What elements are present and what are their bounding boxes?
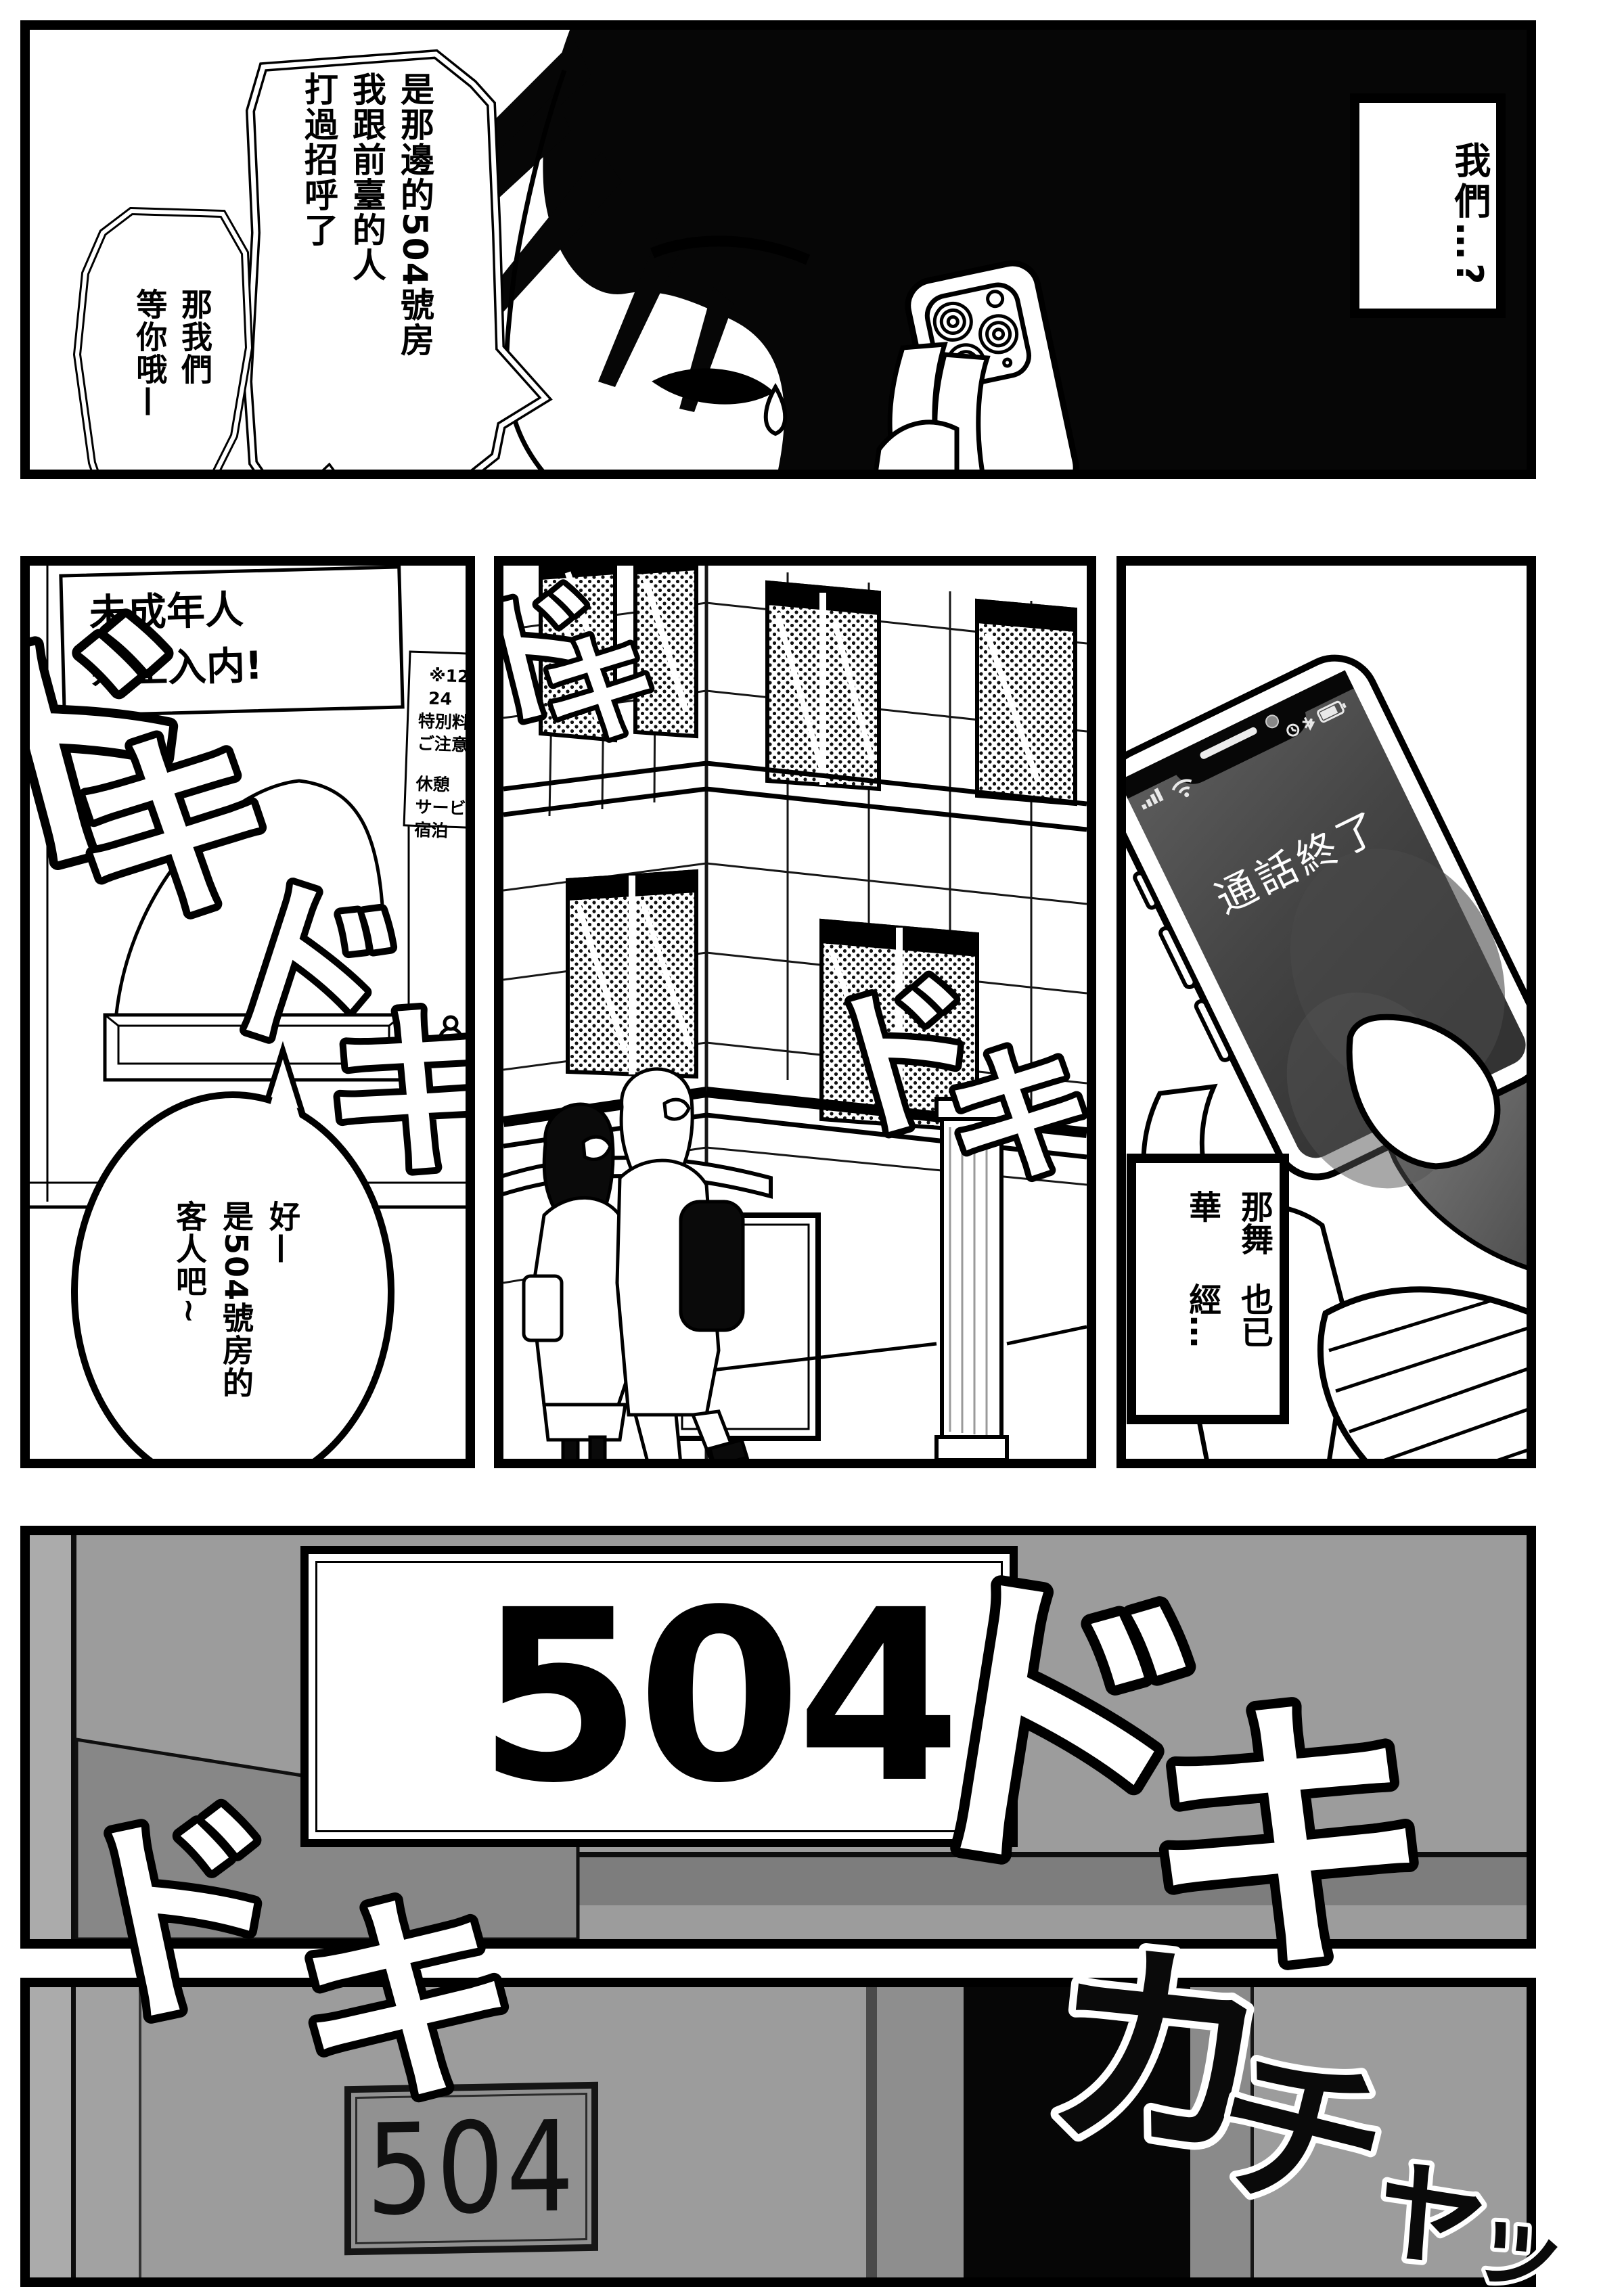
door-knob-icon — [440, 1017, 461, 1050]
lobby-arch — [116, 781, 384, 1014]
narration-box: 那舞華 也已經… — [1127, 1154, 1289, 1424]
handbag — [524, 1276, 562, 1340]
minor-prohibition-sign: 未成年人 禁止入内! — [59, 565, 404, 717]
camera-flash-icon — [987, 290, 1004, 308]
backpack — [681, 1202, 743, 1330]
panel1-art — [30, 30, 1527, 470]
door-plate-text: 504 — [366, 2104, 576, 2233]
sleeve — [1321, 1290, 1527, 1459]
eye — [656, 370, 771, 402]
room-number-sign: 504 — [300, 1546, 1018, 1847]
dialogue-line: 打過招呼了 — [294, 72, 342, 464]
panel-phone-screen: 通話終了 那舞華 也已經… — [1116, 556, 1536, 1468]
phone-dialogue-sub: 那我們 等你哦— — [126, 288, 217, 479]
panel-room-sign: 504 — [20, 1526, 1536, 1949]
column — [937, 1099, 1007, 1459]
thought-text: 我們…? — [1359, 120, 1496, 310]
door-edge — [1190, 1987, 1250, 2277]
dialogue-line: 那我們 — [172, 288, 217, 479]
sign-line: 禁止入内! — [90, 634, 401, 698]
building-windows — [541, 566, 1075, 1131]
thought-box: 我們…? — [1350, 93, 1506, 318]
dialogue-line: 是那邊的504號房 — [390, 72, 438, 464]
panel-phone-call: 是那邊的504號房 我跟前臺的人 打過招呼了 那我們 等你哦— — [20, 20, 1536, 479]
phone-dialogue-main: 是那邊的504號房 我跟前臺的人 打過招呼了 — [292, 72, 438, 464]
clerk-dialogue: 好— 是504號房的 客人吧~ — [150, 1200, 306, 1468]
door-jamb — [866, 1987, 877, 2277]
panel-hotel-exterior — [494, 556, 1096, 1468]
door-plate: 504 — [344, 2082, 598, 2256]
room-number-text: 504 — [478, 1579, 956, 1815]
dialogue-line: 等你哦— — [127, 288, 173, 479]
panel-room-door: 504 — [20, 1978, 1536, 2287]
sign-line: 未成年人 — [89, 578, 399, 643]
panel6-art — [30, 1987, 1527, 2277]
panel3-art — [503, 566, 1087, 1459]
door-opening — [964, 1987, 1190, 2277]
narration-text: 那舞華 也已經… — [1136, 1190, 1280, 1407]
reception-counter — [105, 1015, 403, 1080]
dialogue-line: 我跟前臺的人 — [342, 72, 390, 464]
manga-page: 是那邊的504號房 我跟前臺的人 打過招呼了 那我們 等你哦— 我們…? — [0, 0, 1624, 2293]
rate-notice-sign: ※12月24 特別料金 ご注意く 休憩 サービス 宿泊 — [403, 650, 475, 830]
panel-hotel-lobby: 未成年人 禁止入内! ※12月24 特別料金 ご注意く 休憩 サービス 宿泊 好… — [20, 556, 475, 1468]
